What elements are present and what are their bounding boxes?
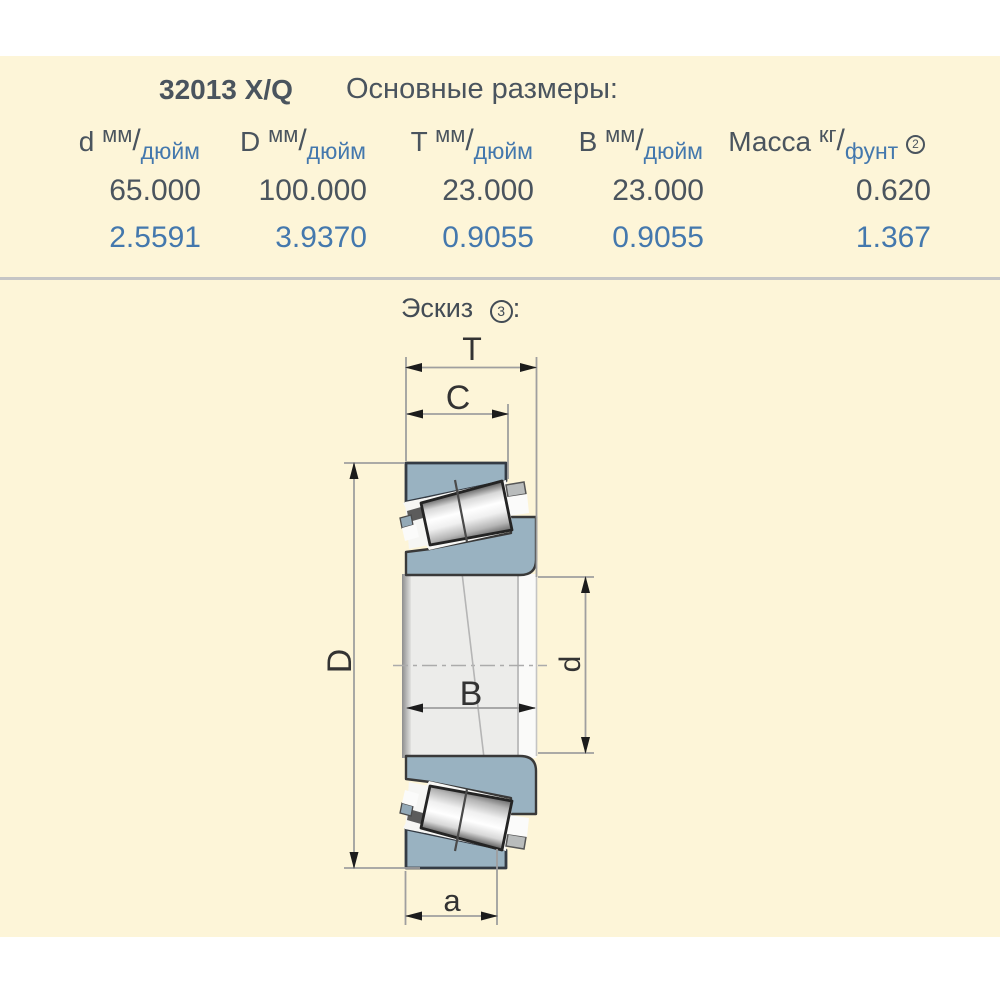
svg-text:C: C [446,379,471,417]
svg-text:D: D [321,649,359,674]
svg-text:T: T [462,331,482,367]
svg-text:a: a [443,883,461,918]
svg-text:d: d [554,656,587,673]
svg-text:B: B [460,675,483,713]
